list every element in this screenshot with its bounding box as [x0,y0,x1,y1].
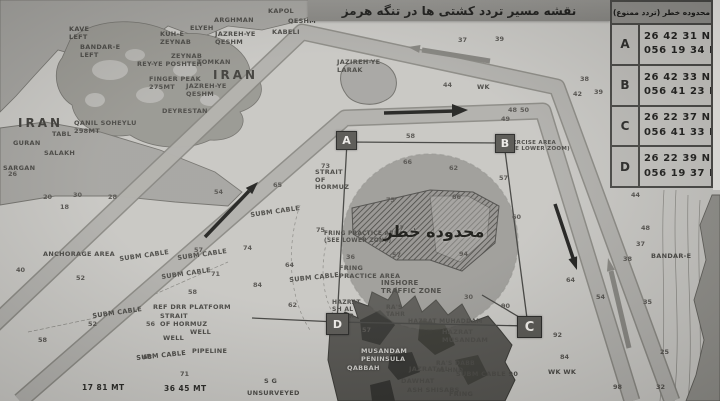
chart-title: نقشه مسیر تردد کشتی ها در تنگه هرمز [342,4,577,18]
corner-marker-b-letter: B [501,137,509,150]
point-label: B [612,66,640,105]
nautical-chart-photo: KAPOLQESHMKABELIARGHMANELYEHKUH-E ZEYNAB… [0,0,720,401]
corner-marker-d-letter: D [333,318,342,331]
table-row: A 26 42 31 N 056 19 34 E [612,25,711,66]
table-row: C 26 22 37 N 056 41 33 E [612,107,711,148]
latitude-value: 26 22 37 N [644,111,711,126]
danger-zone-label: محدوده خطر [372,222,496,241]
corner-marker-c-letter: C [525,320,535,335]
larak-island [341,60,397,104]
page-edge-strip [713,0,720,190]
corner-marker-a: A [336,131,357,150]
longitude-value: 056 19 34 E [644,44,711,59]
table-row: B 26 42 33 N 056 41 23 E [612,66,711,107]
corner-marker-b: B [495,134,515,153]
chart-title-bar: نقشه مسیر تردد کشتی ها در تنگه هرمز [308,0,610,21]
point-label: C [612,107,640,146]
coordinates-table-title: محدوده خطر (تردد ممنوع) [612,2,711,25]
corner-marker-d: D [326,313,349,335]
latitude-value: 26 42 33 N [644,71,711,86]
corner-marker-c: C [517,316,542,338]
latitude-value: 26 42 31 N [644,30,711,45]
longitude-value: 056 41 23 E [644,85,711,100]
corner-marker-a-letter: A [342,134,351,147]
point-label: A [612,25,640,64]
point-label: D [612,147,640,186]
longitude-value: 056 19 37 E [644,167,711,182]
longitude-value: 056 41 33 E [644,126,711,141]
coordinates-table: محدوده خطر (تردد ممنوع) A 26 42 31 N 056… [610,0,713,188]
table-row: D 26 22 39 N 056 19 37 E [612,147,711,186]
latitude-value: 26 22 39 N [644,152,711,167]
